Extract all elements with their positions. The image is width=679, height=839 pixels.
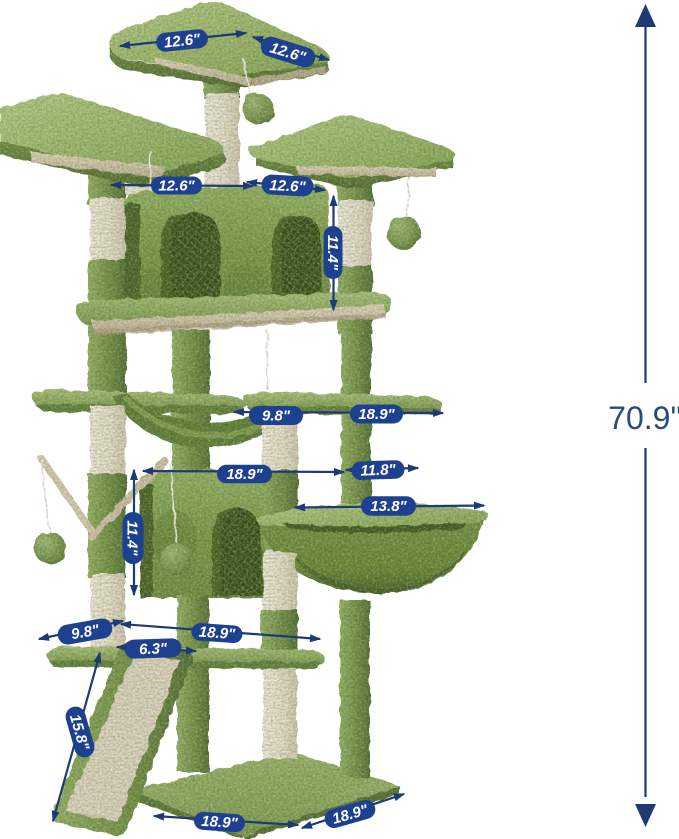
svg-text:18.9": 18.9" — [358, 406, 395, 423]
svg-text:18.9": 18.9" — [201, 813, 239, 833]
svg-text:13.8": 13.8" — [370, 498, 407, 515]
svg-text:6.3": 6.3" — [139, 640, 168, 658]
svg-text:11.4": 11.4" — [124, 520, 141, 556]
svg-text:18.9": 18.9" — [226, 466, 263, 483]
svg-text:9.8": 9.8" — [262, 408, 291, 425]
svg-text:12.6": 12.6" — [158, 178, 195, 195]
svg-text:12.6": 12.6" — [269, 177, 307, 196]
svg-text:18.9": 18.9" — [198, 624, 236, 644]
svg-text:11.4": 11.4" — [324, 235, 341, 271]
svg-text:11.8": 11.8" — [360, 461, 397, 479]
svg-text:70.9": 70.9" — [608, 400, 679, 436]
